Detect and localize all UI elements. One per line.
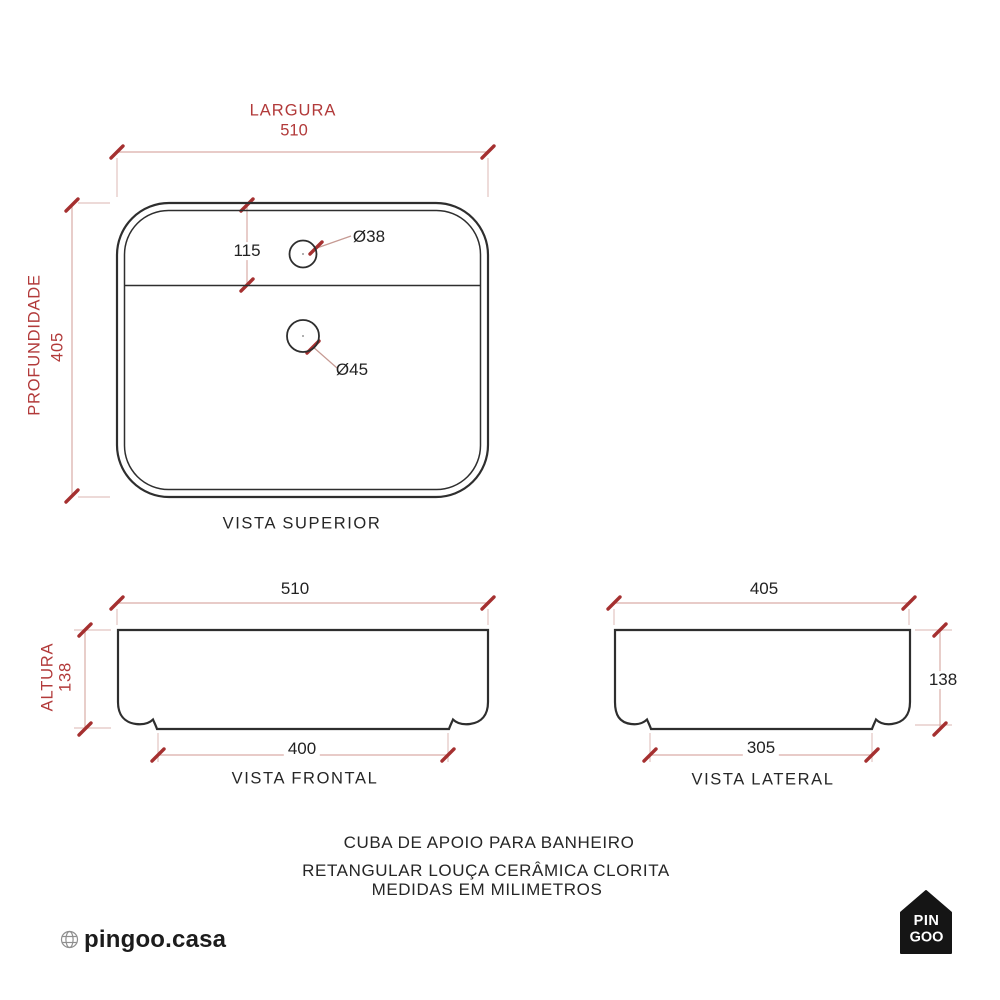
logo-text-bottom: GOO	[910, 930, 944, 946]
side-base-dim: 305	[743, 739, 779, 757]
top-view-title: VISTA SUPERIOR	[223, 515, 382, 532]
pingoo-house-logo: PIN GOO	[901, 891, 951, 953]
caption-line-2: RETANGULAR LOUÇA CERÂMICA CLORITA	[302, 862, 670, 880]
logo-text-top: PIN	[914, 913, 940, 929]
website-wordmark: pingoo.casa	[84, 926, 226, 954]
caption-line-1: CUBA DE APOIO PARA BANHEIRO	[344, 834, 635, 852]
leader-lines	[312, 236, 351, 368]
extension-lines	[74, 158, 952, 762]
drain-hole-center-dot	[302, 335, 304, 337]
altura-label: ALTURA	[39, 643, 56, 712]
dimension-ticks	[66, 146, 946, 761]
globe-icon	[62, 932, 78, 948]
side-depth-dim: 405	[750, 580, 778, 598]
side-height-dim: 138	[925, 671, 961, 689]
front-view-title: VISTA FRONTAL	[232, 770, 379, 787]
faucet-hole-dim: Ø38	[353, 228, 385, 246]
largura-label: LARGURA	[250, 102, 337, 119]
profundidade-value: 405	[49, 332, 66, 362]
front-base-dim: 400	[284, 740, 320, 758]
front-view-outline	[118, 630, 488, 729]
side-view-outline	[615, 630, 910, 729]
altura-value: 138	[57, 662, 74, 692]
side-view-title: VISTA LATERAL	[691, 771, 834, 788]
front-width-dim: 510	[281, 580, 309, 598]
profundidade-label: PROFUNDIDADE	[26, 274, 43, 416]
largura-value: 510	[280, 122, 308, 139]
top-view-outline	[117, 203, 488, 497]
caption-line-3: MEDIDAS EM MILIMETROS	[372, 881, 603, 899]
dimension-lines	[72, 152, 940, 755]
hole-offset-dim: 115	[229, 242, 264, 260]
drawing-sheet: PIN GOO LARGURA 510 PROFUNDIDADE 405 115…	[0, 0, 1000, 1000]
drain-hole-dim: Ø45	[336, 361, 368, 379]
faucet-hole-center-dot	[302, 253, 304, 255]
